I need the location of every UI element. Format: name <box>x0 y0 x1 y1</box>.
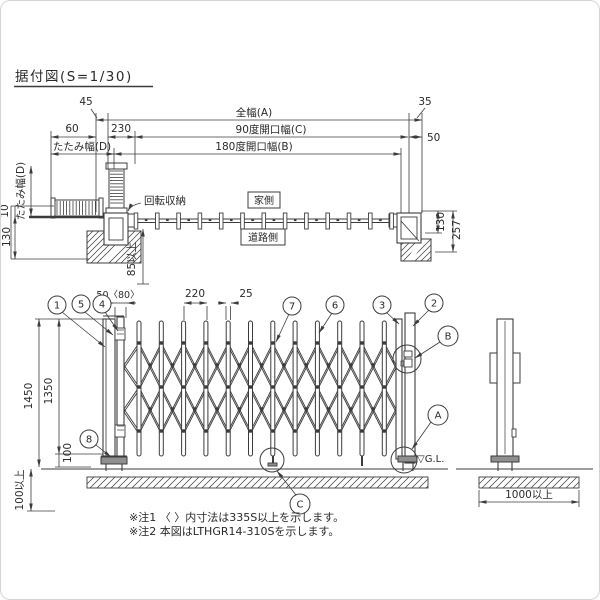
note-1: ※注1 〈 〉内寸法は335S以上を示します。 <box>129 510 344 524</box>
balloon-8: 8 <box>80 430 98 448</box>
drawing-geometry <box>29 163 593 488</box>
overall-width-label: 全幅(A) <box>236 106 272 119</box>
balloon-A: A <box>428 405 448 425</box>
svg-text:4: 4 <box>99 300 105 311</box>
road-side-label: 道路側 <box>248 231 278 244</box>
dim-85-min-label: 85以上 <box>126 242 138 276</box>
balloon-4: 4 <box>93 295 111 313</box>
dim-60-label: 60 <box>65 123 78 135</box>
dim-230-label: 230 <box>111 123 131 135</box>
svg-text:B: B <box>445 332 452 343</box>
svg-text:8: 8 <box>86 435 92 446</box>
product-drawing-image: 据付図(S=1/30) 45 全幅(A) 35 60 230 90度開口幅(C)… <box>0 0 600 600</box>
notes: ※注1 〈 〉内寸法は335S以上を示します。 ※注2 本図はLTHGR14-3… <box>129 510 344 538</box>
dim-45-label: 45 <box>79 96 92 108</box>
page-title: 据付図(S=1/30) <box>15 69 133 85</box>
ground-level-label: ▽G.L. <box>417 454 444 465</box>
svg-text:A: A <box>435 411 442 422</box>
dim-1450-label: 1450 <box>23 383 35 410</box>
dim-35-label: 35 <box>418 96 431 108</box>
dim-50-label: 50 <box>427 132 440 144</box>
dim-130-left-label: 130 <box>1 227 13 247</box>
dim-220-label: 220 <box>185 288 205 300</box>
svg-text:2: 2 <box>431 299 437 310</box>
svg-text:3: 3 <box>379 301 385 312</box>
svg-text:C: C <box>297 500 304 511</box>
svg-text:7: 7 <box>289 302 295 313</box>
installation-drawing: 据付図(S=1/30) 45 全幅(A) 35 60 230 90度開口幅(C)… <box>1 1 599 599</box>
svg-text:5: 5 <box>78 300 84 311</box>
dim-10-label: 10 <box>1 204 11 217</box>
rotation-storage-label: 回転収納 <box>144 194 186 207</box>
drawing-title: 据付図(S=1/30) <box>14 69 153 87</box>
dim-130-right-label: 130 <box>435 212 447 232</box>
opening-180-label: 180度開口幅(B) <box>215 140 292 153</box>
dim-257-label: 257 <box>451 220 463 240</box>
plan-view: 45 全幅(A) 35 60 230 90度開口幅(C) 50 たたみ幅(D) … <box>1 96 463 276</box>
balloon-5: 5 <box>72 295 90 313</box>
fold-width-top-label: たたみ幅(D) <box>53 140 111 153</box>
svg-text:6: 6 <box>332 301 338 312</box>
dim-25-label: 25 <box>239 288 252 300</box>
svg-text:1: 1 <box>54 301 60 312</box>
balloon-6: 6 <box>326 296 344 314</box>
house-side-label: 家側 <box>254 194 274 207</box>
dim-1000-min-label: 1000以上 <box>505 489 553 501</box>
balloon-1: 1 <box>48 296 66 314</box>
side-view: 1000以上 <box>505 489 553 501</box>
dim-100-min-label: 100以上 <box>14 469 26 510</box>
fold-width-left-label: たたみ幅(D) <box>14 162 27 220</box>
opening-90-label: 90度開口幅(C) <box>236 123 307 136</box>
note-2: ※注2 本図はLTHGR14-310Sを示します。 <box>129 524 339 538</box>
balloon-7: 7 <box>283 297 301 315</box>
dim-100-label: 100 <box>62 443 74 463</box>
balloon-2: 2 <box>425 294 443 312</box>
dim-1350-label: 1350 <box>43 378 55 405</box>
balloon-B: B <box>438 326 458 346</box>
balloon-3: 3 <box>373 296 391 314</box>
